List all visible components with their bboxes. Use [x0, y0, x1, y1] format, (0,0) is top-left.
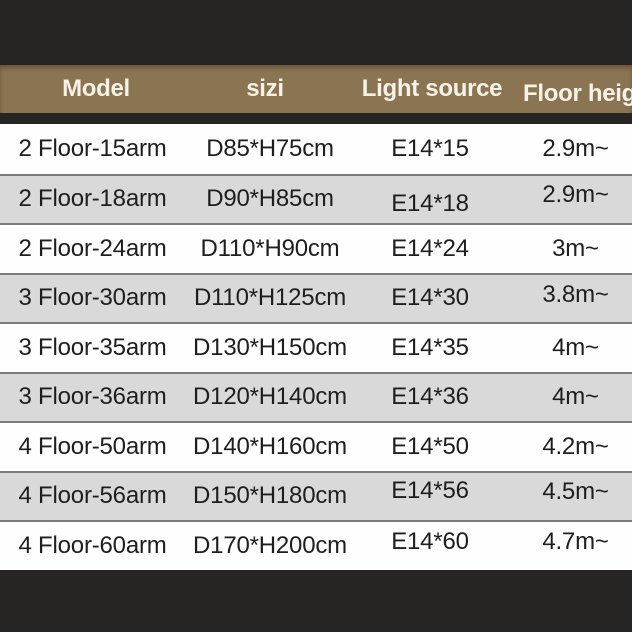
cell-model: 4 Floor-60arm: [0, 532, 185, 560]
column-header-size: sizi: [246, 65, 283, 113]
cell-model: 4 Floor-56arm: [0, 482, 185, 510]
cell-model: 2 Floor-15arm: [0, 135, 185, 163]
cell-model: 3 Floor-30arm: [0, 284, 185, 312]
cell-size: D140*H160cm: [185, 433, 355, 461]
cell-light-source: E14*36: [355, 383, 505, 411]
table-row: 4 Floor-60armD170*H200cmE14*604.7m~: [0, 520, 632, 570]
cell-model: 3 Floor-35arm: [0, 334, 185, 362]
cell-size: D90*H85cm: [185, 185, 355, 213]
table-row: 2 Floor-24armD110*H90cmE14*243m~: [0, 223, 632, 273]
cell-floor-height: 2.9m~: [505, 181, 632, 209]
table-row: 2 Floor-15armD85*H75cmE14*152.9m~: [0, 124, 632, 174]
cell-floor-height: 2.9m~: [505, 135, 632, 163]
cell-size: D85*H75cm: [185, 135, 355, 163]
cell-light-source: E14*30: [355, 284, 505, 312]
spec-table: 2 Floor-15armD85*H75cmE14*152.9m~2 Floor…: [0, 124, 632, 570]
cell-light-source: E14*60: [355, 528, 505, 556]
cell-size: D130*H150cm: [185, 334, 355, 362]
cell-floor-height: 3m~: [505, 235, 632, 263]
column-header-model: Model: [62, 65, 130, 113]
cell-model: 2 Floor-18arm: [0, 185, 185, 213]
cell-size: D150*H180cm: [185, 482, 355, 510]
cell-light-source: E14*18: [355, 190, 505, 218]
cell-floor-height: 4.7m~: [505, 528, 632, 556]
cell-light-source: E14*24: [355, 235, 505, 263]
spec-sheet: Model sizi Light source Floor height 2 F…: [0, 0, 632, 632]
table-row: 4 Floor-50armD140*H160cmE14*504.2m~: [0, 421, 632, 471]
table-row: 2 Floor-18armD90*H85cmE14*182.9m~: [0, 174, 632, 224]
table-row: 4 Floor-56armD150*H180cmE14*564.5m~: [0, 471, 632, 521]
table-header-band: Model sizi Light source Floor height: [0, 65, 632, 113]
table-row: 3 Floor-30armD110*H125cmE14*303.8m~: [0, 273, 632, 323]
cell-floor-height: 3.8m~: [505, 281, 632, 309]
cell-model: 2 Floor-24arm: [0, 235, 185, 263]
cell-floor-height: 4.5m~: [505, 478, 632, 506]
cell-floor-height: 4.2m~: [505, 433, 632, 461]
column-header-light-source: Light source: [362, 65, 502, 113]
cell-size: D170*H200cm: [185, 532, 355, 560]
cell-floor-height: 4m~: [505, 383, 632, 411]
cell-size: D110*H90cm: [185, 235, 355, 263]
cell-size: D120*H140cm: [185, 383, 355, 411]
cell-model: 4 Floor-50arm: [0, 433, 185, 461]
table-row: 3 Floor-36armD120*H140cmE14*364m~: [0, 372, 632, 422]
table-row: 3 Floor-35armD130*H150cmE14*354m~: [0, 322, 632, 372]
cell-light-source: E14*50: [355, 433, 505, 461]
cell-size: D110*H125cm: [185, 284, 355, 312]
cell-model: 3 Floor-36arm: [0, 383, 185, 411]
cell-light-source: E14*56: [355, 477, 505, 505]
column-header-floor-height: Floor height: [523, 65, 632, 118]
cell-floor-height: 4m~: [505, 334, 632, 362]
cell-light-source: E14*15: [355, 135, 505, 163]
cell-light-source: E14*35: [355, 334, 505, 362]
